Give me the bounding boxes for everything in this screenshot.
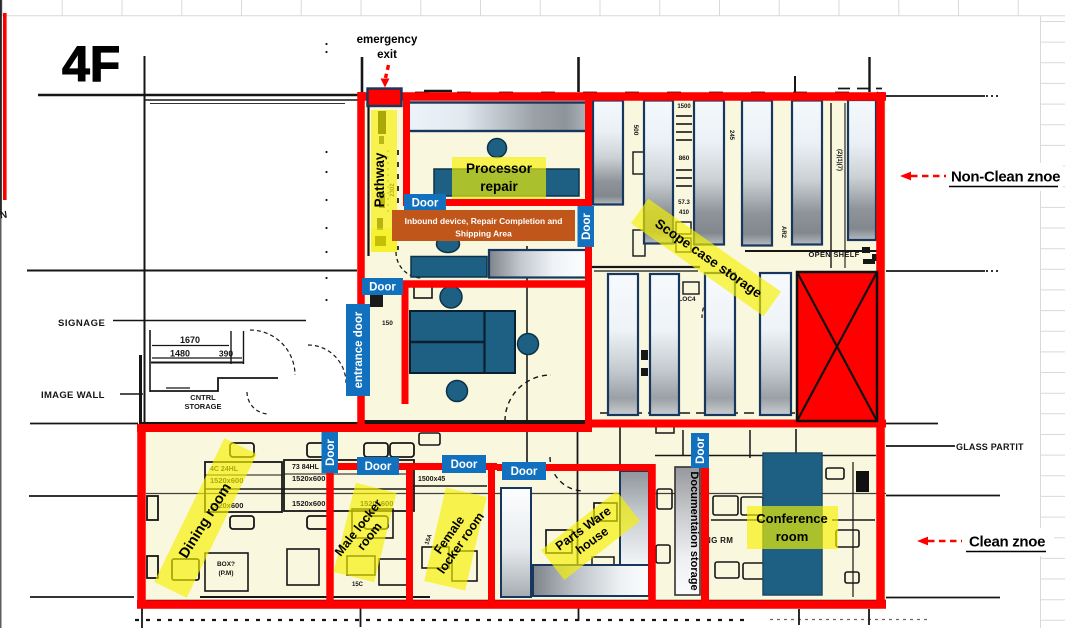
svg-text:Clean znoe: Clean znoe [969,534,1045,551]
svg-text:1480: 1480 [170,349,190,359]
svg-text:STORAGE: STORAGE [185,402,222,411]
svg-text:Door: Door [365,461,392,473]
svg-text:GLASS PARTIT: GLASS PARTIT [956,442,1024,452]
svg-text:Door: Door [412,198,439,210]
svg-text:1520x600: 1520x600 [292,474,325,483]
svg-text:Door: Door [369,282,396,294]
svg-text:NG RM: NG RM [705,536,733,545]
svg-text:150: 150 [382,320,393,327]
svg-text:BOX?: BOX? [217,561,235,568]
svg-text:room: room [776,529,809,544]
svg-text:1500: 1500 [677,104,691,110]
svg-text:AR2: AR2 [780,226,786,239]
svg-text:15C: 15C [352,582,364,588]
svg-text:(2)(1)(7): (2)(1)(7) [836,149,842,171]
svg-text:(P.M): (P.M) [218,570,233,577]
svg-text:Door: Door [695,437,707,464]
svg-text:Conference: Conference [756,511,828,526]
svg-text:4F: 4F [62,36,120,92]
svg-text:LOC4: LOC4 [678,296,696,303]
svg-text:Door: Door [325,439,337,466]
svg-text:Shipping Area: Shipping Area [455,229,512,239]
svg-text:73 84HL: 73 84HL [292,464,320,471]
svg-text:410: 410 [679,210,690,216]
svg-text:390: 390 [219,349,233,359]
svg-text:Door: Door [581,213,593,240]
svg-text:Processor: Processor [466,161,533,176]
svg-text:Door: Door [511,466,538,478]
svg-text:Non-Clean znoe: Non-Clean znoe [951,169,1060,186]
svg-text:SIGNAGE: SIGNAGE [58,318,105,329]
svg-text:1500x45: 1500x45 [418,476,445,483]
svg-text:57.3: 57.3 [678,200,690,206]
svg-text:repair: repair [480,179,518,194]
svg-text:Pathway: Pathway [372,152,387,207]
svg-text:Documentaion storage: Documentaion storage [688,471,700,590]
svg-text:CNTRL: CNTRL [190,393,216,402]
svg-text:IMAGE WALL: IMAGE WALL [41,390,105,401]
svg-text:entrance door: entrance door [353,311,365,388]
svg-text:exit: exit [377,49,397,61]
svg-text:245: 245 [728,130,734,141]
svg-text:Door: Door [451,459,478,471]
svg-text:emergency: emergency [357,34,418,46]
svg-text:Inbound device, Repair Complet: Inbound device, Repair Completion and [405,216,563,226]
svg-text:500: 500 [632,125,639,136]
svg-text:1670: 1670 [180,335,200,345]
svg-text:1520x600: 1520x600 [292,499,325,508]
svg-text:860: 860 [679,155,690,162]
